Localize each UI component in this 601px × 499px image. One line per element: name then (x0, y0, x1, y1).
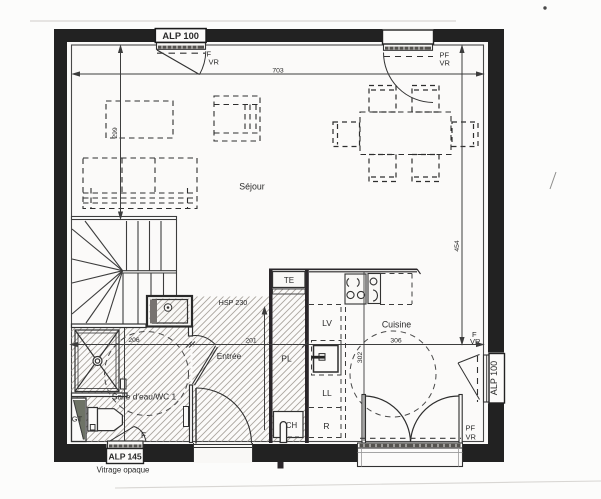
svg-text:206: 206 (128, 337, 140, 344)
svg-text:CH: CH (286, 421, 297, 430)
svg-text:TE: TE (284, 276, 294, 285)
svg-text:201: 201 (245, 338, 257, 345)
svg-text:VR: VR (466, 433, 477, 442)
svg-text:Cuisine: Cuisine (382, 320, 411, 330)
svg-text:302: 302 (357, 352, 364, 364)
svg-text:HSP 230: HSP 230 (219, 298, 248, 307)
svg-text:Séjour: Séjour (239, 182, 264, 192)
svg-text:ALP 100: ALP 100 (489, 361, 499, 395)
svg-text:ALP 100: ALP 100 (162, 31, 199, 41)
svg-text:299: 299 (112, 127, 119, 139)
svg-text:ALP 145: ALP 145 (108, 452, 141, 462)
svg-text:Salle d'eau/WC 1: Salle d'eau/WC 1 (112, 392, 177, 402)
svg-text:GT: GT (72, 415, 83, 424)
svg-text:LL: LL (322, 388, 332, 398)
svg-text:VR: VR (440, 59, 451, 68)
svg-text:R: R (323, 421, 329, 431)
svg-text:Vitrage opaque: Vitrage opaque (97, 466, 150, 475)
svg-text:F: F (141, 431, 146, 440)
svg-text:VR: VR (209, 58, 220, 67)
svg-text:PF: PF (466, 424, 476, 433)
svg-text:PL: PL (281, 354, 292, 364)
svg-text:454: 454 (454, 240, 461, 252)
svg-text:703: 703 (272, 68, 284, 75)
svg-text:Entrée: Entrée (217, 351, 242, 361)
svg-text:LV: LV (322, 318, 332, 328)
svg-text:306: 306 (390, 338, 402, 345)
